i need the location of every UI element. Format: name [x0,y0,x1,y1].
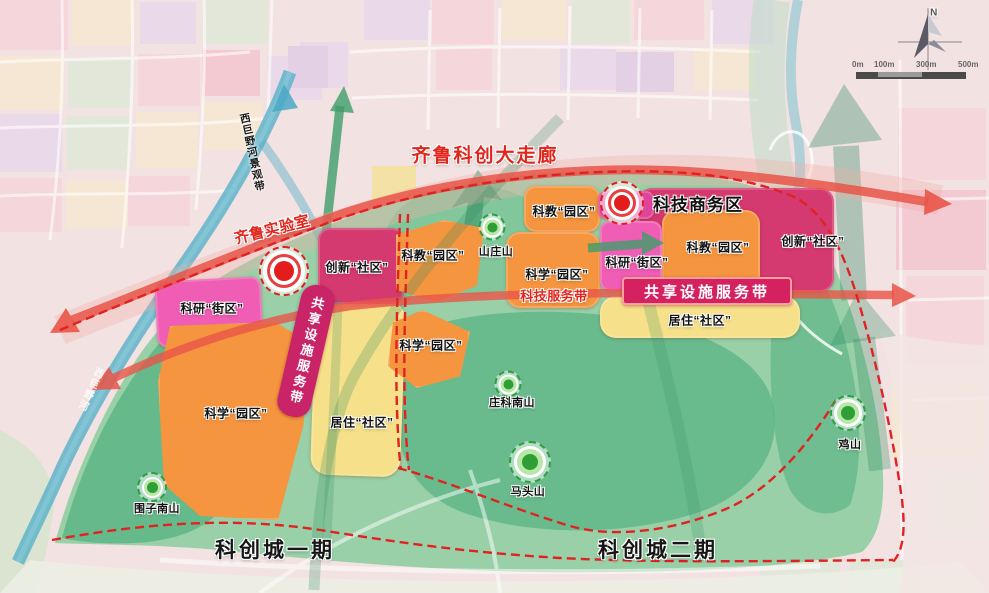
district-block-kejiao-park-north [524,186,600,232]
shared-facility-belt-east-banner: 共享设施服务带 [622,277,792,305]
mountain-core [147,482,158,493]
mountain-core [503,379,513,389]
mountain-marker-matoushan-icon [509,441,551,483]
mountain-marker-weizinanshan-icon [137,472,167,502]
tech-business-marker-core [614,195,630,211]
mountain-core [487,222,497,232]
qilu-lab-marker-core [274,261,294,281]
mountain-marker-jishan-icon [830,395,866,431]
mountain-marker-shanzhuangshan-icon [479,214,506,241]
planning-map: 共享设施服务带 共享设施服务带 齐鲁科创大走廊 齐鲁实验室 科技商务区 科研“街… [0,0,989,593]
mountain-marker-zhuangkenanshan-icon [495,371,522,398]
land-use-blocks [0,0,989,593]
district-block-kejiao-park-mid [396,220,484,302]
district-block-kexue-park-center [506,232,600,308]
mountain-core [841,406,855,420]
tech-business-marker-icon [600,181,644,225]
shared-facility-belt-east-label: 共享设施服务带 [644,281,770,302]
mountain-core [522,454,538,470]
qilu-lab-marker-icon [259,246,309,296]
district-block-kexue-park-west [158,322,308,520]
